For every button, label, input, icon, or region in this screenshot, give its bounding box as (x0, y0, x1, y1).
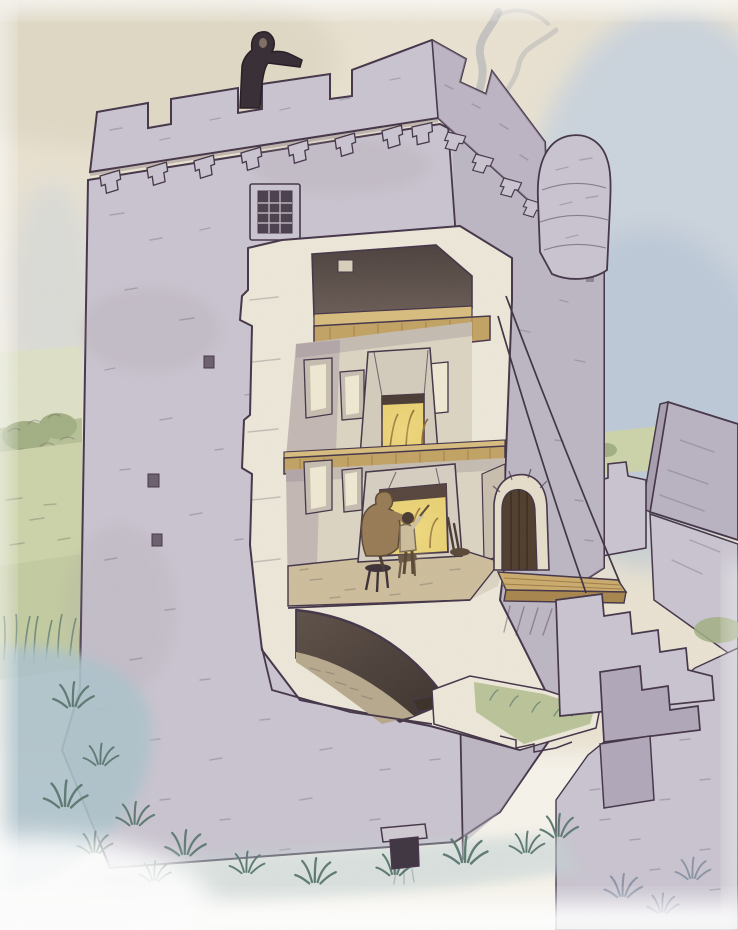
paper-grain (0, 0, 738, 930)
illustration-canvas (0, 0, 738, 930)
photo-vignette (0, 0, 738, 930)
tower-house-cutaway-illustration (0, 0, 738, 930)
